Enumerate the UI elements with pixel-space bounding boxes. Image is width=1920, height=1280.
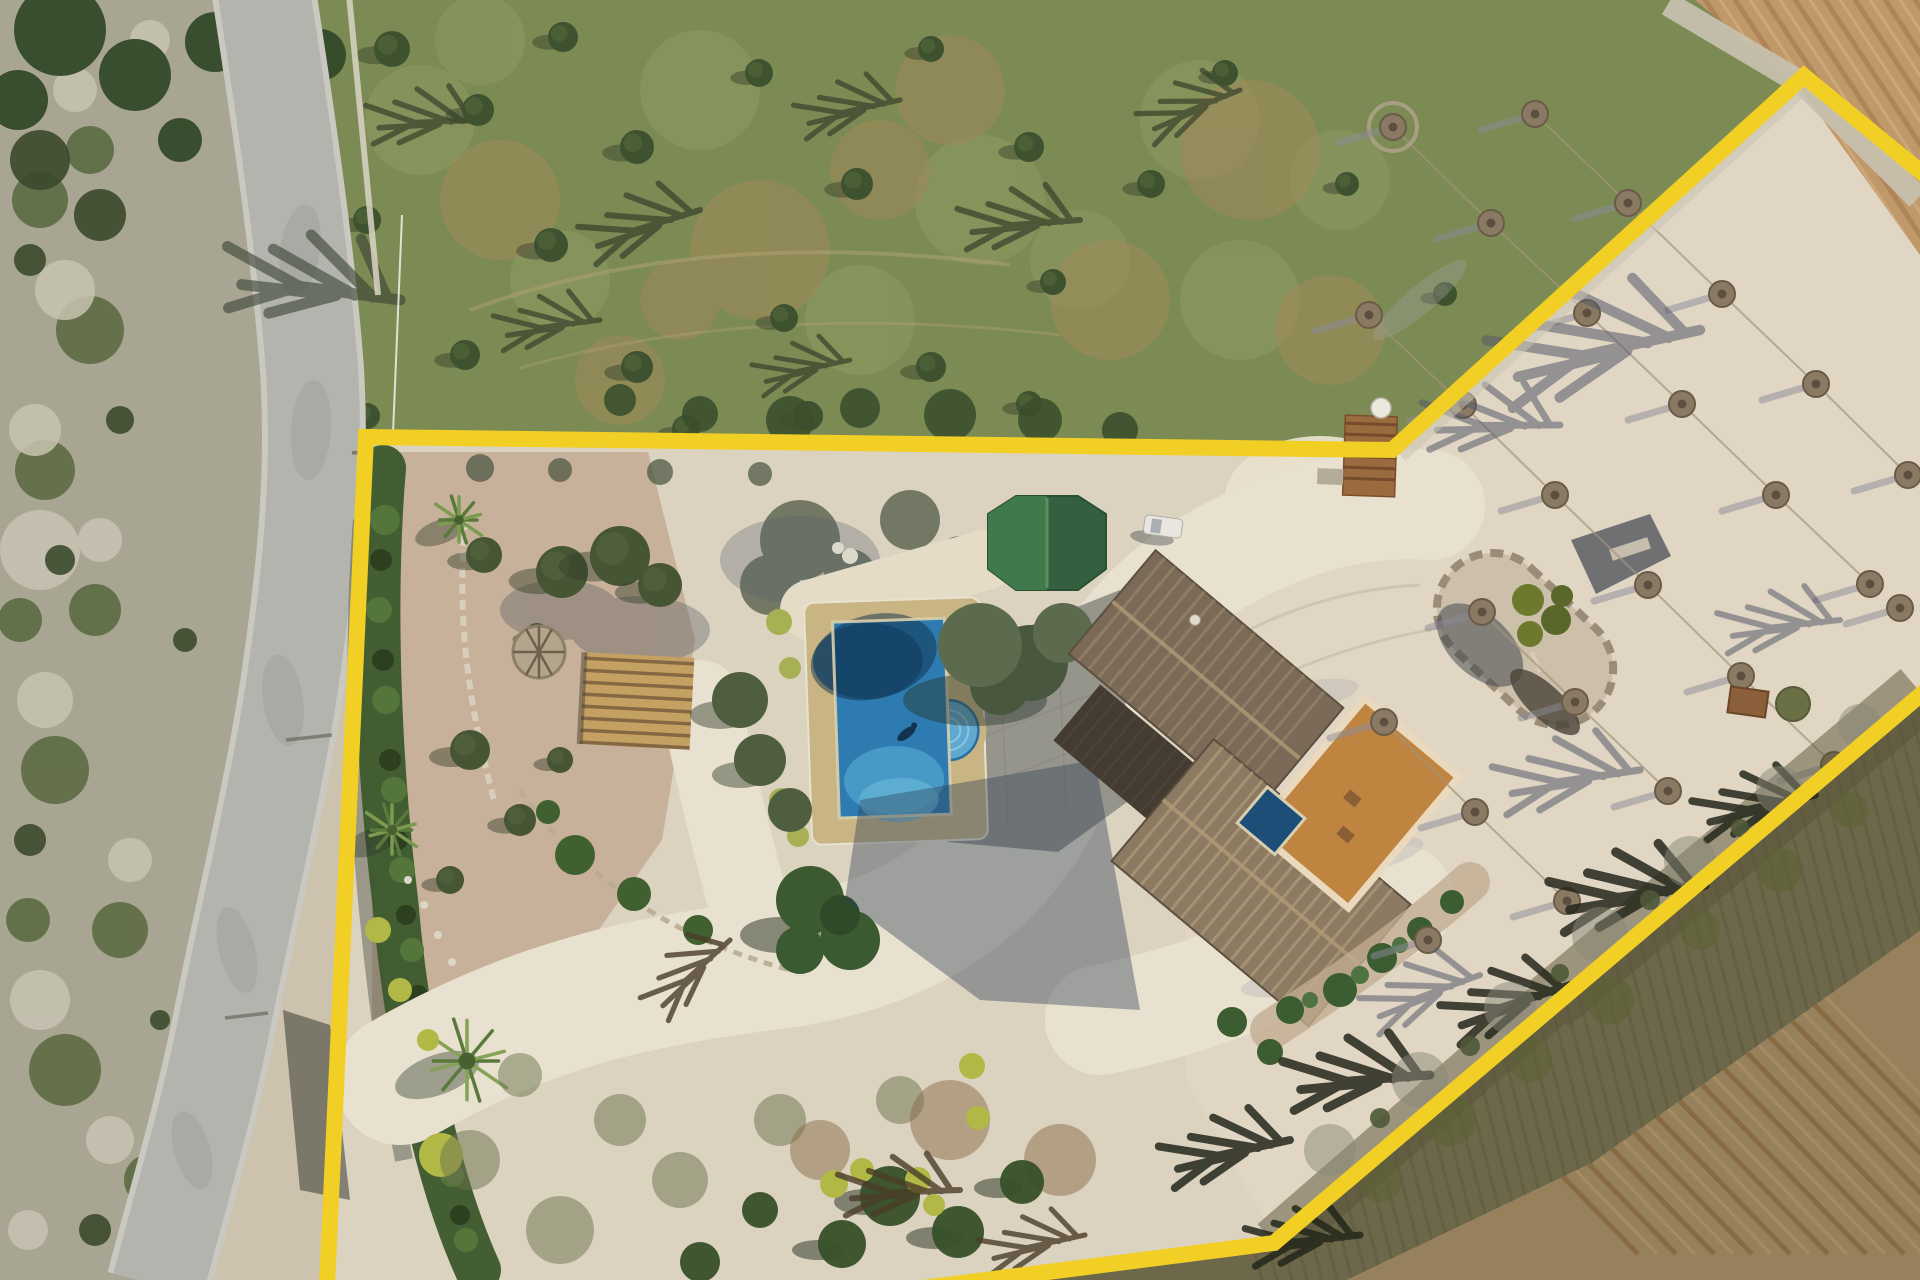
orchard-young-trees-center xyxy=(1471,808,1480,817)
top-fence-canopy xyxy=(548,458,572,482)
scrub-green-patch xyxy=(21,736,89,804)
field-olive-trees-light xyxy=(623,133,642,152)
scrub-green-rows xyxy=(1586,976,1634,1024)
picnic-table-top xyxy=(1727,686,1768,717)
field-olive-trees-light xyxy=(1215,63,1229,77)
scrub-rock-patch xyxy=(35,260,95,320)
foundation-shrubs xyxy=(1217,1007,1247,1037)
garden-olive-trees-light xyxy=(550,750,564,764)
field-olive-trees-light xyxy=(453,343,470,360)
bottom-green-trees xyxy=(742,1192,778,1228)
orchard-young-trees-center xyxy=(1896,604,1905,613)
scrub-green-patch xyxy=(0,598,42,642)
fenceline-bushes xyxy=(1370,1108,1390,1128)
palm-tree-core xyxy=(459,1053,476,1070)
orchard-young-trees-center xyxy=(1551,491,1560,500)
bottom-dirt-patch xyxy=(790,1120,850,1180)
orchard-young-trees-center xyxy=(1531,110,1540,119)
fenceline-bushes xyxy=(1640,890,1660,910)
field-olive-trees-light xyxy=(921,39,935,53)
fenceline-bushes xyxy=(1460,1036,1480,1056)
scrub-dark-tree xyxy=(173,628,197,652)
garden-olive-trees-light xyxy=(507,807,525,825)
scrub-dark-tree xyxy=(14,824,46,856)
fenceline-bush-shadow xyxy=(1304,1124,1356,1176)
orchard-young-trees-center xyxy=(1478,608,1487,617)
field-olive-trees-light xyxy=(1337,174,1350,187)
orchard-young-trees-center xyxy=(1644,581,1653,590)
orchard-young-trees-center xyxy=(1664,787,1673,796)
topleft-trees xyxy=(158,118,202,162)
flowerbed-shrubs xyxy=(536,800,560,824)
picnic-table xyxy=(1727,686,1768,717)
field-dirt-patches xyxy=(640,260,720,340)
field-light-grass xyxy=(640,30,760,150)
bottom-scrub-patch xyxy=(498,1053,542,1097)
orchard-young-trees-center xyxy=(1866,580,1875,589)
topleft-trees xyxy=(99,39,171,111)
orchard-young-trees-center xyxy=(1904,471,1913,480)
fenceline-bushes xyxy=(1551,964,1569,982)
poolwest-olive-canopy xyxy=(712,672,768,728)
top-fence-olives xyxy=(682,396,718,432)
top-fence-olives xyxy=(604,384,636,416)
orchard-young-trees-center xyxy=(1737,672,1746,681)
scrub-green-patch xyxy=(6,898,50,942)
orchard-young-trees-center xyxy=(1389,123,1398,132)
field-olive-trees-light xyxy=(465,97,483,115)
top-fence-canopy xyxy=(880,490,940,550)
top-fence-canopy xyxy=(466,454,494,482)
poolwest-olive-canopy xyxy=(734,734,786,786)
scrub-dark-tree xyxy=(45,545,75,575)
border-rocks xyxy=(420,901,428,909)
aerial-photo-stage xyxy=(0,0,1920,1280)
rockgarden-bushes xyxy=(1517,621,1543,647)
hedge-highlight xyxy=(381,777,407,803)
top-fence-canopy xyxy=(647,459,673,485)
hedge-shade xyxy=(372,649,394,671)
scrub-dark-tree xyxy=(79,1214,111,1246)
foundation-shrubs xyxy=(1440,890,1464,914)
orchard-young-trees-center xyxy=(1563,897,1572,906)
scrub-rock-patch xyxy=(86,1116,134,1164)
garden-olive-trees-light xyxy=(470,541,490,561)
hedge-shade xyxy=(370,549,392,571)
bottom-scrub-patch xyxy=(594,1094,646,1146)
hedge-shade xyxy=(396,905,416,925)
orchard-young-trees-center xyxy=(1365,311,1374,320)
orchard-young-trees-center xyxy=(1487,219,1496,228)
ruin-tile-rows xyxy=(1345,434,1397,436)
orchard-bush xyxy=(1776,687,1810,721)
hedge-highlight xyxy=(370,505,400,535)
bottom-scrub-patch xyxy=(526,1196,594,1264)
field-olive-trees-light xyxy=(378,35,398,55)
top-fence-canopy xyxy=(748,462,772,486)
field-olive-trees-light xyxy=(537,231,556,250)
orchard-young-trees-center xyxy=(1624,199,1633,208)
field-olive-trees-light xyxy=(919,355,936,372)
chimney xyxy=(1190,615,1201,626)
white-rocks xyxy=(842,548,858,564)
hedge-shade xyxy=(450,1205,470,1225)
bottom-green-trees xyxy=(818,1220,866,1268)
garden-olive-trees-light xyxy=(596,532,629,565)
flowerbed-shrubs xyxy=(617,877,651,911)
palm-tree-core xyxy=(387,825,397,835)
orchard-young-trees-center xyxy=(1571,698,1580,707)
rockgarden-bushes-dark xyxy=(1541,605,1571,635)
foundation-shrubs xyxy=(1276,996,1304,1024)
orchard-young-trees-center xyxy=(1424,936,1433,945)
rockgarden-bushes-dark xyxy=(1551,585,1573,607)
scrub-green-patch xyxy=(66,126,114,174)
orchard-young-trees-center xyxy=(1772,491,1781,500)
poolwest-olive-canopy xyxy=(768,788,812,832)
poolside-yellow-bush xyxy=(766,609,792,635)
orchard-young-trees-center xyxy=(1380,718,1389,727)
scrub-rock-patch xyxy=(10,970,70,1030)
field-olive-trees-light xyxy=(1017,135,1034,152)
ruin-tile-rows xyxy=(1343,478,1395,480)
palm-tree-core xyxy=(454,515,464,525)
border-rocks xyxy=(434,931,442,939)
orchard-young-trees-center xyxy=(1718,290,1727,299)
scrub-dark-tree xyxy=(150,1010,170,1030)
scrub-dark-tree xyxy=(106,406,134,434)
field-olive-trees-light xyxy=(844,171,862,189)
southpool-tree xyxy=(776,926,824,974)
hedge-shade xyxy=(379,749,401,771)
bottom-green-trees xyxy=(1000,1160,1044,1204)
foundation-shrubs-light xyxy=(1302,992,1318,1008)
poolside-yellow-bush xyxy=(779,657,801,679)
aerial-property-photo xyxy=(0,0,1920,1280)
scrub-rock-patch xyxy=(8,1210,48,1250)
field-olive-trees-light xyxy=(1043,272,1057,286)
orchard-young-trees-center xyxy=(1583,309,1592,318)
scrub-dark-tree xyxy=(74,189,126,241)
top-fence-olives xyxy=(840,388,880,428)
yellow-green-bush xyxy=(388,978,412,1002)
white-rocks xyxy=(832,542,844,554)
ruin-tile-rows xyxy=(1344,467,1396,469)
border-rocks xyxy=(404,876,412,884)
garden-olive-trees-light xyxy=(439,869,454,884)
hedge-highlight xyxy=(454,1228,478,1252)
scrub-green-patch xyxy=(29,1034,101,1106)
bottom-scrub-patch xyxy=(652,1152,708,1208)
field-olive-trees-light xyxy=(773,307,788,322)
bottom-yellow-bush xyxy=(959,1053,985,1079)
hedge-highlight xyxy=(366,597,392,623)
hedge-highlight xyxy=(400,938,424,962)
yellow-green-bush xyxy=(417,1029,439,1051)
scrub-rock-patch xyxy=(17,672,73,728)
top-fence-olives xyxy=(1018,398,1062,442)
yellow-green-bush xyxy=(365,917,391,943)
scrub-green-patch xyxy=(69,584,121,636)
scrub-rock-patch xyxy=(108,838,152,882)
orchard-young-trees-center xyxy=(1812,380,1821,389)
field-dirt-patches xyxy=(1050,240,1170,360)
border-rocks xyxy=(448,958,456,966)
scrub-rock-patch xyxy=(78,518,122,562)
scrub-dark-tree xyxy=(14,244,46,276)
scrub-dark-tree xyxy=(10,130,70,190)
ruin-wall xyxy=(1317,468,1344,485)
field-olive-trees-light xyxy=(624,354,642,372)
field-olive-trees-light xyxy=(1140,173,1155,188)
satellite-dish xyxy=(1371,398,1391,418)
bottom-scrub-patch xyxy=(440,1130,500,1190)
bottom-yellow-bush xyxy=(923,1194,945,1216)
car-windshield xyxy=(1150,518,1162,533)
top-fence-olives xyxy=(924,389,976,441)
rockgarden-bushes xyxy=(1512,584,1544,616)
garden-olive-trees-light xyxy=(642,567,666,591)
orchard-young-trees-center xyxy=(1678,400,1687,409)
garden-olive-trees-light xyxy=(454,734,476,756)
flowerbed-shrubs xyxy=(555,835,595,875)
field-olive-trees-light xyxy=(551,25,568,42)
scrub-green-rows xyxy=(1680,910,1720,950)
field-dirt-patches xyxy=(830,120,930,220)
wooden-pergola-deck xyxy=(580,652,695,750)
bottom-yellow-bush xyxy=(966,1106,990,1130)
scrub-green-rows xyxy=(1758,848,1802,892)
scrub-green-rows xyxy=(1832,792,1868,828)
scrub-green-patch xyxy=(92,902,148,958)
field-olive-trees-light xyxy=(748,62,763,77)
patio-olive-canopy xyxy=(938,603,1022,687)
hedge-highlight xyxy=(372,686,400,714)
scrub-rock-patch xyxy=(9,404,61,456)
ruin-tile-rows xyxy=(1345,423,1397,425)
foundation-shrubs-light xyxy=(1351,966,1369,984)
